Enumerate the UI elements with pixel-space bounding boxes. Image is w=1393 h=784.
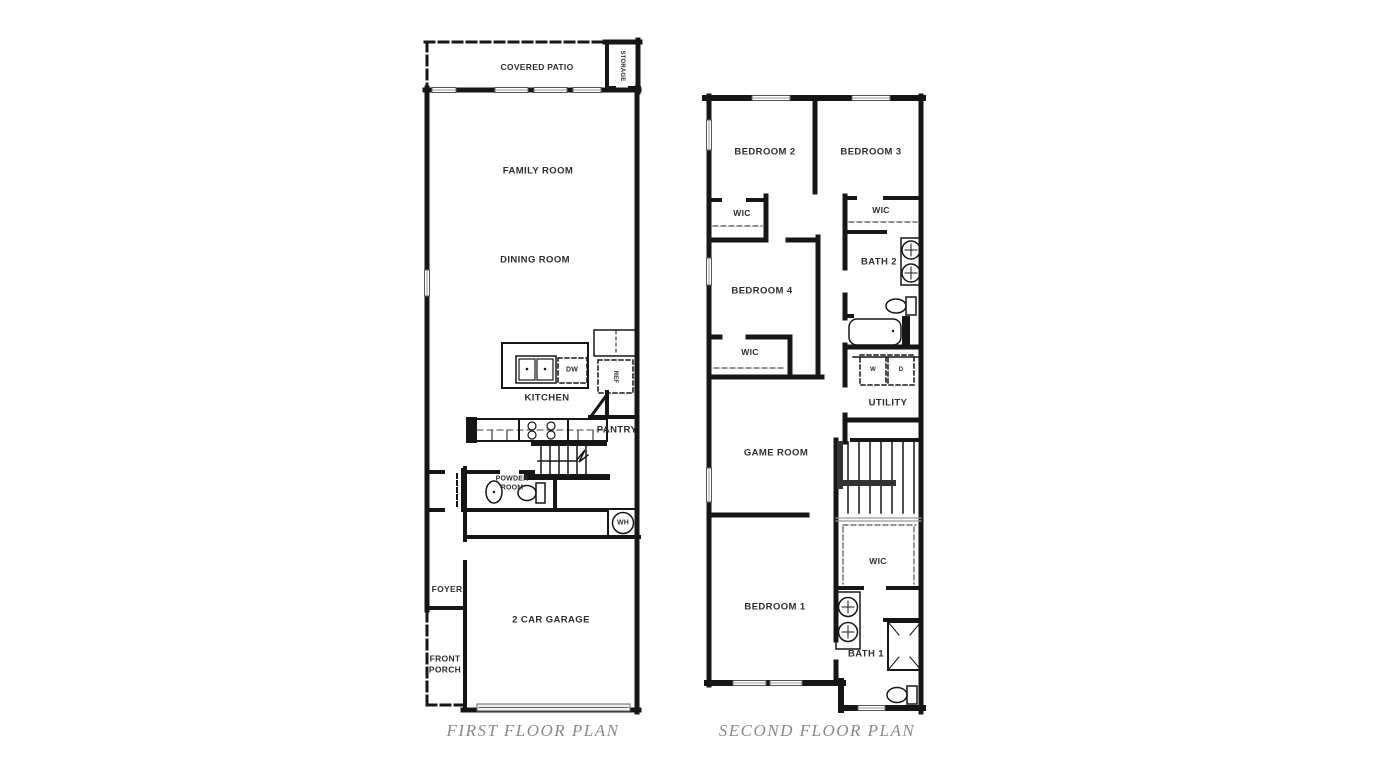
room-label-utility: UTILITY (869, 398, 908, 409)
ff-sink-drain-left (526, 368, 529, 371)
room-label-pantry: PANTRY (597, 425, 637, 436)
sf-bath1-toilet-bowl (887, 688, 907, 703)
sf-bath1-sink-ticks (842, 601, 854, 638)
first-floor-drawing (425, 40, 641, 712)
sf-bath2-sink-ticks (905, 244, 917, 279)
fixture-label-refrigerator: REF (612, 371, 618, 384)
sf-stair-treads (848, 442, 914, 513)
sf-window-centerlines (709, 98, 890, 708)
room-label-powder-room: POWDER ROOM (488, 475, 536, 493)
room-label-storage: STORAGE (619, 51, 625, 82)
fixture-label-dishwasher: DW (566, 367, 578, 374)
room-label-wic-bedroom-3: WIC (872, 205, 889, 215)
fixture-label-water-heater: WH (617, 520, 629, 527)
second-floor-caption: SECOND FLOOR PLAN (719, 721, 915, 741)
room-label-bath-2: BATH 2 (861, 257, 897, 268)
ff-exterior-walls (425, 40, 640, 712)
room-label-bath-1: BATH 1 (848, 649, 884, 660)
ff-counter-ticks (492, 431, 593, 441)
room-label-bedroom-3: BEDROOM 3 (840, 147, 901, 158)
sf-stair-landing-edge (836, 518, 921, 521)
sf-bath2-toilet-bowl (886, 299, 906, 313)
ff-stair-arrow (538, 450, 588, 462)
fixture-label-washer: W (870, 367, 876, 373)
ff-island-sink (516, 356, 556, 383)
room-label-game-room: GAME ROOM (744, 448, 808, 459)
sf-bath2-tub-drain (892, 330, 894, 332)
room-label-wic-bedroom-1: WIC (869, 556, 886, 566)
room-label-covered-patio: COVERED PATIO (500, 62, 573, 72)
sf-bath1-shower (888, 622, 921, 670)
floor-plan-canvas (0, 0, 1393, 784)
floor-plan-sheet: COVERED PATIO STORAGE FAMILY ROOM DINING… (0, 0, 1393, 784)
room-label-wic-bedroom-4: WIC (741, 347, 758, 357)
ff-powder-toilet-tank (536, 483, 545, 503)
ff-counter-endwall (466, 417, 477, 443)
room-label-bedroom-4: BEDROOM 4 (731, 286, 792, 297)
room-label-wic-bedroom-2: WIC (733, 208, 750, 218)
ff-kitchen-island (502, 343, 588, 388)
fixture-label-dryer: D (899, 367, 904, 373)
room-label-bedroom-1: BEDROOM 1 (744, 602, 805, 613)
room-label-foyer: FOYER (432, 584, 463, 594)
first-floor-caption: FIRST FLOOR PLAN (447, 721, 620, 741)
ff-pantry-door (592, 396, 606, 415)
room-label-kitchen: KITCHEN (524, 393, 569, 404)
room-label-front-porch: FRONT PORCH (422, 653, 468, 674)
ff-sink-drain-right (544, 368, 547, 371)
sf-windows (707, 96, 891, 711)
room-label-family-room: FAMILY ROOM (503, 166, 573, 177)
sf-bath1-shower-corners (888, 622, 921, 670)
sf-bath2-toilet-tank (906, 297, 916, 315)
sf-bath2-tub-wall (902, 316, 910, 347)
sf-bath1-toilet-tank (907, 686, 917, 704)
ff-patio-porch-dashed-outline (425, 42, 605, 705)
room-label-garage: 2 CAR GARAGE (512, 615, 590, 626)
room-label-bedroom-2: BEDROOM 2 (734, 147, 795, 158)
ff-interior-walls (427, 42, 639, 710)
room-label-dining-room: DINING ROOM (500, 255, 570, 266)
